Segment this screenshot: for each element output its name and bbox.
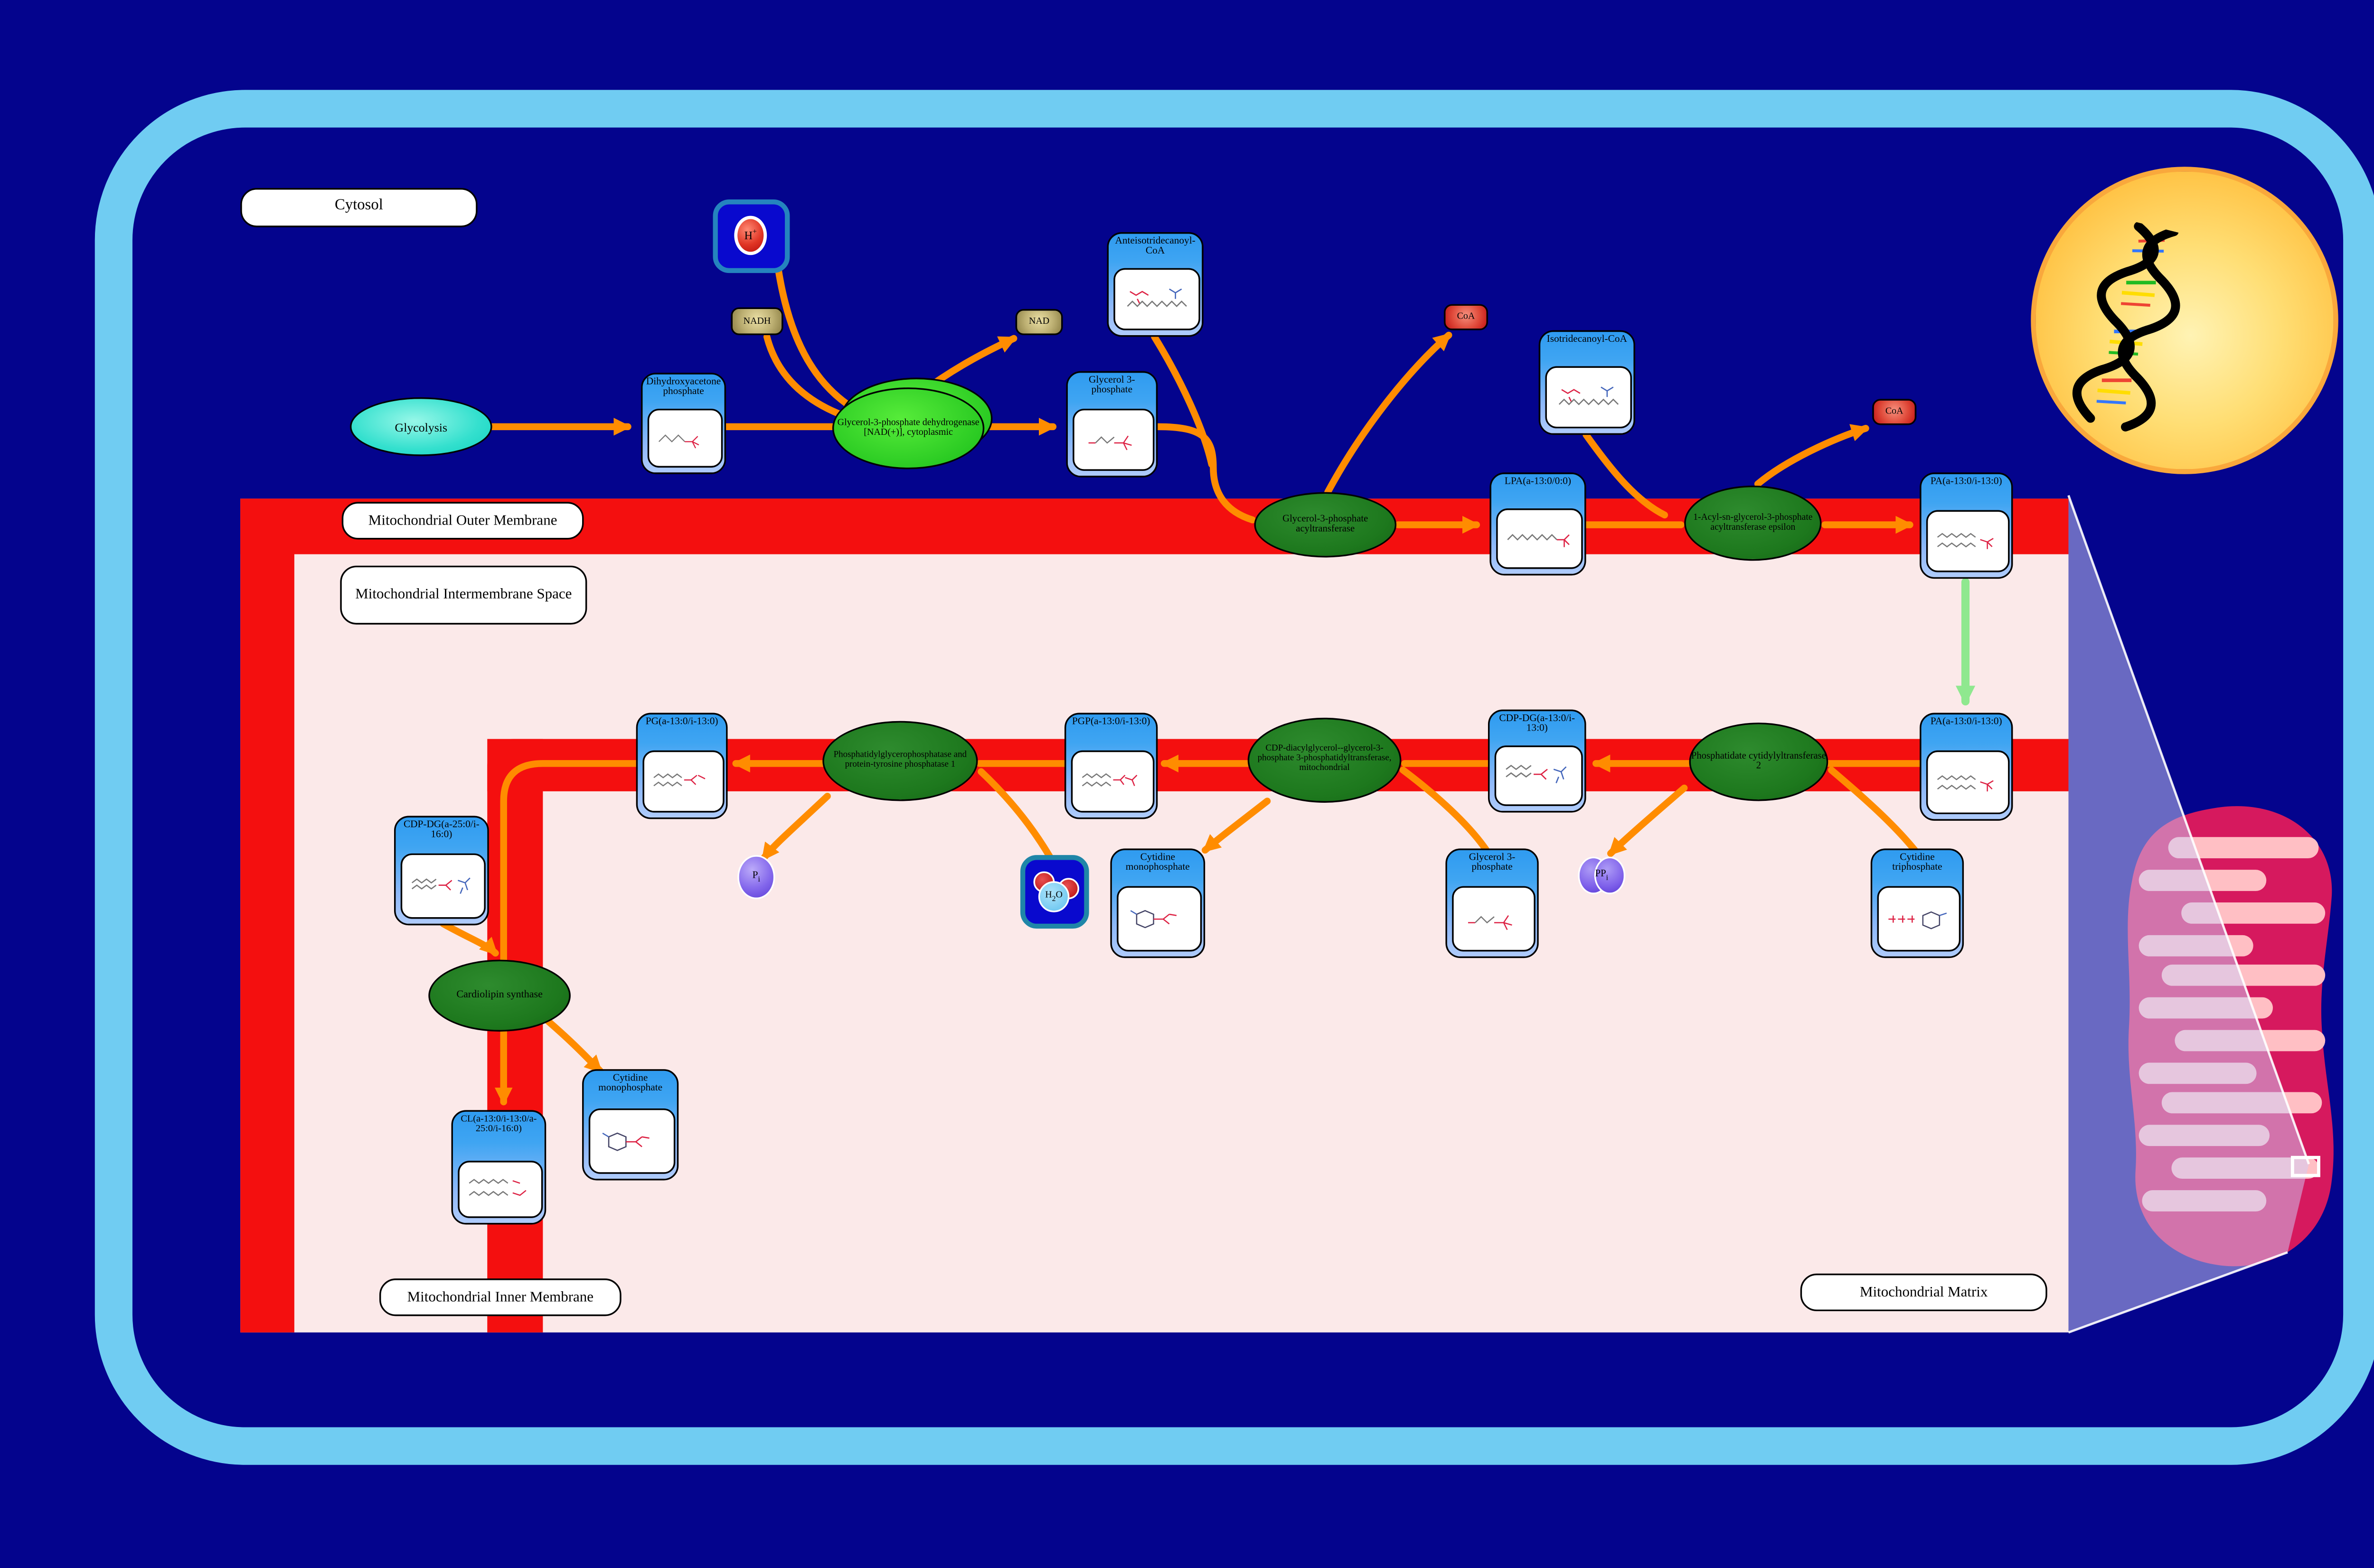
chemical-structure [1927, 509, 2009, 573]
water-icon: H2O [1038, 881, 1069, 912]
chemical-structure [1073, 408, 1154, 471]
species-label: Glycerol 3-phosphate [1449, 853, 1536, 873]
chemical-structure [1072, 750, 1154, 813]
enzyme-cds-mitochondrial[interactable]: CDP-diacylglycerol--glycerol-3-phosphate… [1248, 718, 1402, 803]
pathway-canvas: Cytosol Mitochondrial Outer Membrane Mit… [0, 0, 2374, 1568]
species-pg[interactable]: PG(a-13:0/i-13:0) [636, 713, 728, 819]
chemical-structure [1117, 887, 1201, 952]
enzyme-gpat[interactable]: Glycerol-3-phosphate acyltransferase [1254, 492, 1396, 558]
enzyme-ellipse-front: Glycerol-3-phosphate dehydrogenase [NAD(… [832, 387, 984, 469]
label-text: Mitochondrial Intermembrane Space [355, 587, 572, 603]
species-cardiolipin[interactable]: CL(a-13:0/i-13:0/a-25:0/i-16:0) [452, 1110, 546, 1224]
coa-node-1[interactable]: CoA [1444, 304, 1488, 330]
enzyme-label: 1-Acyl-sn-glycerol-3-phosphate acyltrans… [1686, 513, 1820, 533]
arrow-h2o-input [981, 772, 1050, 857]
arrow-isocoa-input [1586, 435, 1665, 515]
species-label: PGP(a-13:0/i-13:0) [1068, 717, 1155, 727]
species-pgp[interactable]: PGP(a-13:0/i-13:0) [1065, 713, 1158, 819]
species-label: CL(a-13:0/i-13:0/a-25:0/i-16:0) [454, 1114, 543, 1134]
arrow-coa1-output [1328, 335, 1449, 492]
enzyme-label: CDP-diacylglycerol--glycerol-3-phosphate… [1249, 746, 1400, 775]
species-dhap[interactable]: Dihydroxyacetone phosphate [641, 373, 726, 474]
chemical-structure [1452, 887, 1535, 952]
arrow-cdpdg2-input [443, 924, 495, 953]
species-label: Isotridecanoyl-CoA [1542, 334, 1632, 345]
species-ctp[interactable]: Cytidine triphosphate [1871, 848, 1964, 958]
species-cmp-1[interactable]: Cytidine monophosphate [1110, 848, 1205, 958]
enzyme-pcyt2[interactable]: Phosphatidate cytidylyltransferase 2 [1689, 723, 1828, 801]
species-label: Cytidine monophosphate [585, 1073, 675, 1094]
proton-node[interactable]: H+ [713, 199, 790, 273]
arrow-ctp-input [1831, 770, 1915, 850]
water-label: H2O [1045, 891, 1063, 903]
proton-icon: H+ [734, 216, 767, 255]
enzyme-cardiolipin-synthase[interactable]: Cardiolipin synthase [428, 960, 571, 1032]
enzyme-label: Phosphatidylglycerophosphatase and prote… [824, 751, 976, 771]
species-label: CDP-DG(a-13:0/i-13:0) [1491, 714, 1583, 734]
enzyme-agpat-epsilon[interactable]: 1-Acyl-sn-glycerol-3-phosphate acyltrans… [1684, 486, 1821, 561]
coa-node-2[interactable]: CoA [1872, 399, 1916, 425]
label-text: Mitochondrial Outer Membrane [368, 513, 557, 529]
arrow-pg-to-cls-to-cl [504, 763, 638, 1102]
chemical-structure [589, 1108, 675, 1174]
species-g3p-matrix[interactable]: Glycerol 3-phosphate [1445, 848, 1538, 958]
species-g3p-cytosol[interactable]: Glycerol 3-phosphate [1066, 371, 1158, 478]
species-isotridecanoyl-coa[interactable]: Isotridecanoyl-CoA [1539, 330, 1635, 435]
coa-label: CoA [1457, 312, 1475, 322]
species-lpa[interactable]: LPA(a-13:0/0:0) [1489, 472, 1586, 575]
chemical-structure [1497, 508, 1583, 570]
species-cdpdg[interactable]: CDP-DG(a-13:0/i-13:0) [1488, 710, 1586, 813]
water-node[interactable]: H2O [1020, 855, 1089, 929]
label-text: Mitochondrial Inner Membrane [407, 1289, 593, 1305]
enzyme-label: Glycerol-3-phosphate acyltransferase [1256, 514, 1395, 535]
species-label: LPA(a-13:0/0:0) [1493, 477, 1583, 487]
enzyme-label: Phosphatidate cytidylyltransferase 2 [1691, 751, 1827, 773]
species-label: CDP-DG(a-25:0/i-16:0) [397, 820, 486, 841]
label-text: Mitochondrial Matrix [1860, 1285, 1988, 1300]
chemical-structure [401, 854, 485, 919]
ppi-label: PPi [1578, 857, 1625, 894]
phosphate-label: Pi [753, 870, 760, 883]
arrow-coa2-output [1758, 428, 1865, 484]
chemical-structure [648, 408, 723, 468]
chemical-structure [1546, 366, 1631, 429]
label-cytosol: Cytosol [240, 188, 477, 227]
arrow-anteisocoa-input [1154, 337, 1212, 464]
species-cmp-2[interactable]: Cytidine monophosphate [582, 1069, 678, 1180]
nad-label: NAD [1029, 317, 1049, 327]
chemical-structure [1114, 269, 1200, 331]
pathway-node-glycolysis[interactable]: Glycolysis [350, 397, 492, 456]
chemical-structure [1878, 887, 1960, 952]
enzyme-label: Cardiolipin synthase [456, 990, 543, 1001]
arrow-pi-output [763, 796, 827, 858]
label-text: Cytosol [335, 199, 383, 216]
arrow-ppi-output [1611, 788, 1684, 854]
species-label: Cytidine triphosphate [1874, 853, 1961, 873]
arrow-cmp1-output [1205, 801, 1267, 850]
pyrophosphate-node[interactable]: PPi [1578, 857, 1625, 894]
species-pa-outer[interactable]: PA(a-13:0/i-13:0) [1920, 472, 2013, 579]
phosphate-node[interactable]: Pi [737, 855, 775, 899]
enzyme-label: Glycerol-3-phosphate dehydrogenase [NAD(… [834, 418, 982, 439]
species-label: Glycerol 3-phosphate [1069, 375, 1154, 396]
species-label: PA(a-13:0/i-13:0) [1923, 477, 2010, 487]
species-cdpdg2[interactable]: CDP-DG(a-25:0/i-16:0) [394, 816, 489, 926]
species-label: Dihydroxyacetone phosphate [644, 377, 723, 398]
label-intermembrane-space: Mitochondrial Intermembrane Space [340, 566, 587, 625]
nadh-node[interactable]: NADH [731, 307, 783, 335]
nad-node[interactable]: NAD [1016, 309, 1063, 335]
chemical-structure [459, 1161, 543, 1218]
arrow-g3pmatrix-input [1403, 770, 1487, 850]
label-outer-membrane: Mitochondrial Outer Membrane [342, 502, 584, 539]
species-label: PA(a-13:0/i-13:0) [1923, 717, 2010, 727]
species-label: PG(a-13:0/i-13:0) [640, 717, 725, 727]
label-inner-membrane: Mitochondrial Inner Membrane [379, 1278, 622, 1316]
proton-label: H+ [744, 228, 757, 243]
chemical-structure [1495, 745, 1582, 807]
nadh-label: NADH [744, 316, 771, 326]
pathway-label: Glycolysis [395, 419, 448, 434]
enzyme-g3p-dehydrogenase[interactable]: Glycerol-3-phosphate dehydrogenase [NAD(… [832, 387, 984, 469]
enzyme-ptpmt1[interactable]: Phosphatidylglycerophosphatase and prote… [822, 721, 978, 801]
species-anteisotridecanoyl-coa[interactable]: Anteisotridecanoyl-CoA [1107, 232, 1204, 337]
label-matrix: Mitochondrial Matrix [1800, 1274, 2047, 1311]
chemical-structure [643, 750, 724, 813]
species-label: Anteisotridecanoyl-CoA [1110, 236, 1200, 257]
coa-label: CoA [1885, 407, 1903, 417]
arrow-cls-to-cmp2 [541, 1015, 600, 1071]
species-label: Cytidine monophosphate [1113, 853, 1202, 873]
species-pa-inner[interactable]: PA(a-13:0/i-13:0) [1920, 713, 2013, 821]
chemical-structure [1927, 751, 2009, 815]
